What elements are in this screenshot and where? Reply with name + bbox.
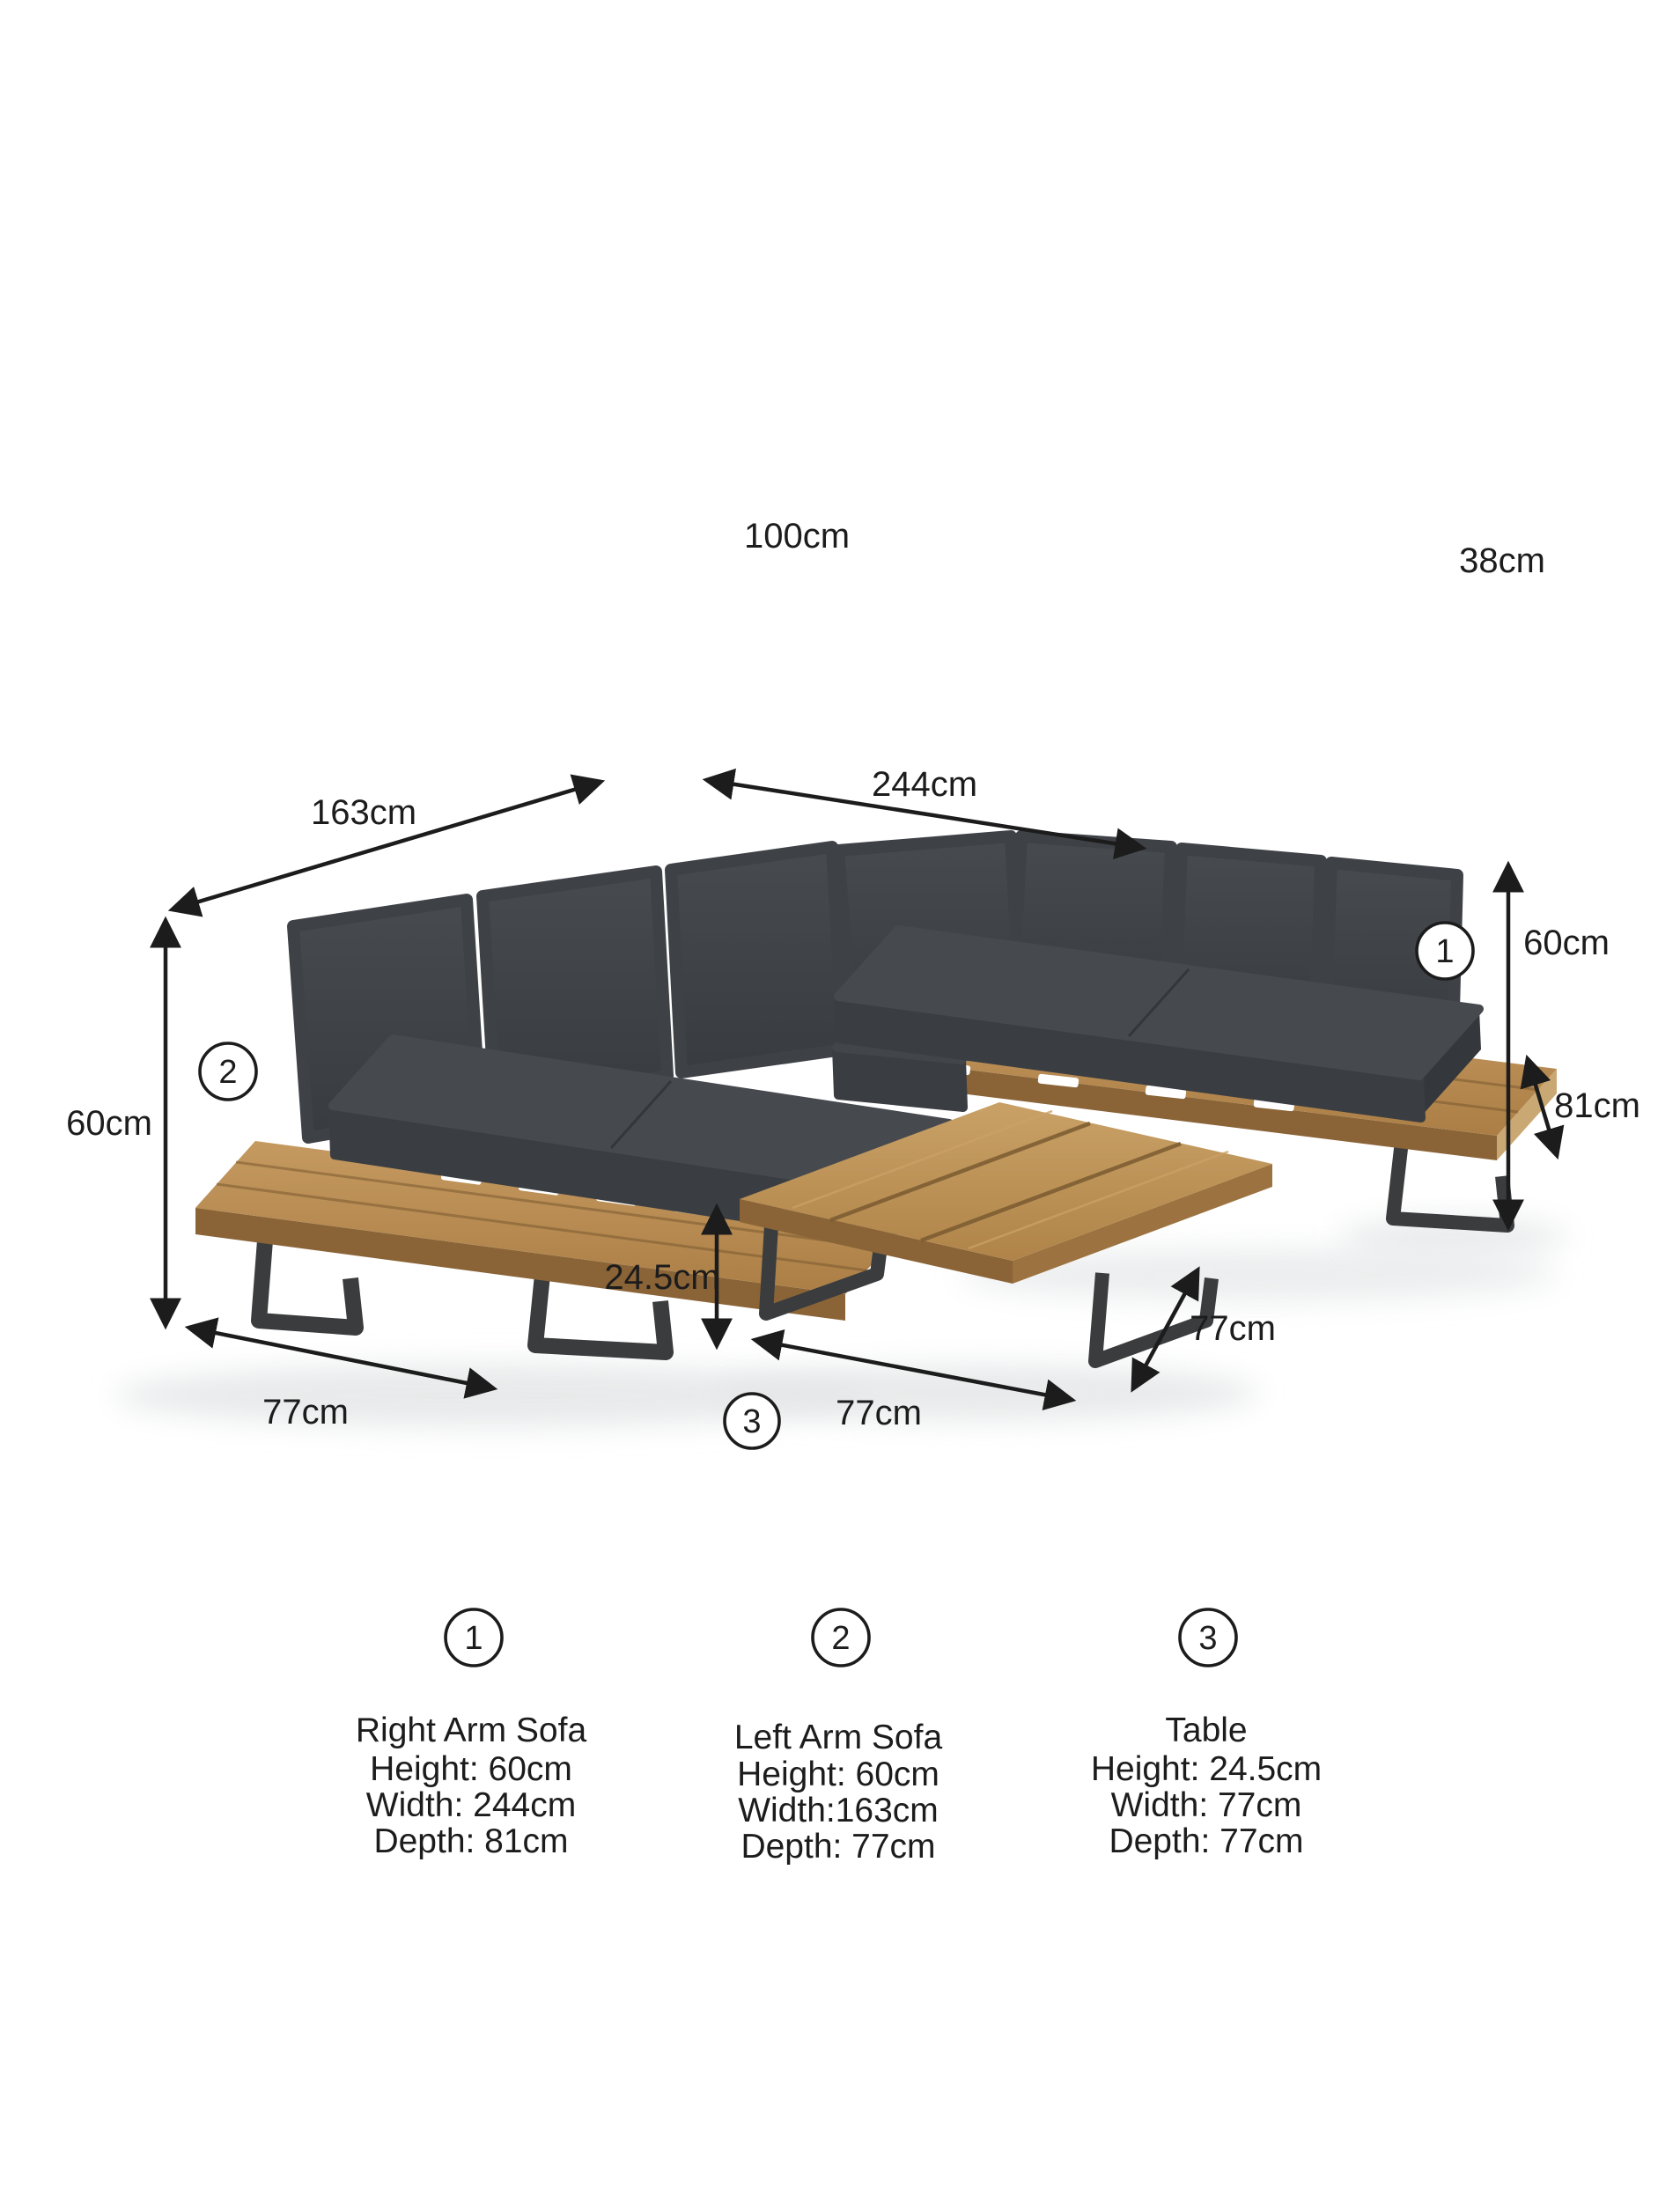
left-arm-sofa-illustration [195,847,949,1352]
dimension-label: 77cm [1190,1309,1276,1348]
legend-item-name: Table [1165,1711,1247,1749]
dimension-label: 77cm [836,1394,922,1432]
dimension-label: 24.5cm [604,1258,719,1297]
dimension-label: 244cm [872,765,977,804]
dimension-label: 60cm [66,1104,152,1143]
diagram-canvas: 100cm 38cm 163cm 244cm 60cm 81cm 60cm 24… [0,0,1680,2201]
legend-spec-height: Height: 24.5cm [1091,1750,1322,1788]
legend-spec-width: Width: 244cm [366,1786,576,1824]
marker-left-sofa: 2 [200,1043,256,1100]
legend-item-right-arm-sofa: 1 Right Arm Sofa Height: 60cm Width: 244… [356,1609,587,1860]
dimension-right-sofa-height: 60cm [1508,865,1610,1226]
legend-spec-height: Height: 60cm [737,1756,939,1793]
legend-number: 2 [831,1620,850,1657]
legend-item-name: Left Arm Sofa [734,1719,943,1756]
dimension-label: 81cm [1554,1086,1640,1125]
back-cushion [671,847,844,1072]
legend-item-name: Right Arm Sofa [356,1711,587,1749]
legend-spec-width: Width: 77cm [1111,1786,1302,1824]
legend-spec-depth: Depth: 77cm [1109,1822,1303,1860]
marker-number: 2 [218,1054,237,1091]
dimension-left-sofa-height: 60cm [66,921,166,1325]
legend-spec-width: Width:163cm [738,1792,939,1829]
dimension-label-seat-width: 100cm [744,517,850,556]
dimension-label-back-cushion-height: 38cm [1459,541,1545,580]
dimension-label: 163cm [311,793,416,832]
dimension-label: 60cm [1523,924,1610,962]
dimension-label: 77cm [262,1393,349,1432]
product-dimension-diagram: 100cm 38cm 163cm 244cm 60cm 81cm 60cm 24… [0,0,1680,2201]
shadow-table [713,1365,1259,1421]
legend-spec-depth: Depth: 81cm [373,1822,568,1860]
legend-item-table: 3 Table Height: 24.5cm Width: 77cm Depth… [1091,1609,1322,1860]
marker-number: 3 [742,1403,761,1440]
legend-number: 3 [1198,1620,1217,1657]
legend: 1 Right Arm Sofa Height: 60cm Width: 244… [356,1609,1322,1866]
legend-number: 1 [464,1620,483,1657]
legend-spec-depth: Depth: 77cm [741,1828,935,1866]
marker-number: 1 [1435,933,1454,970]
legend-spec-height: Height: 60cm [370,1750,572,1788]
legend-item-left-arm-sofa: 2 Left Arm Sofa Height: 60cm Width:163cm… [734,1609,943,1866]
marker-table: 3 [725,1394,779,1448]
marker-right-sofa: 1 [1417,923,1473,979]
